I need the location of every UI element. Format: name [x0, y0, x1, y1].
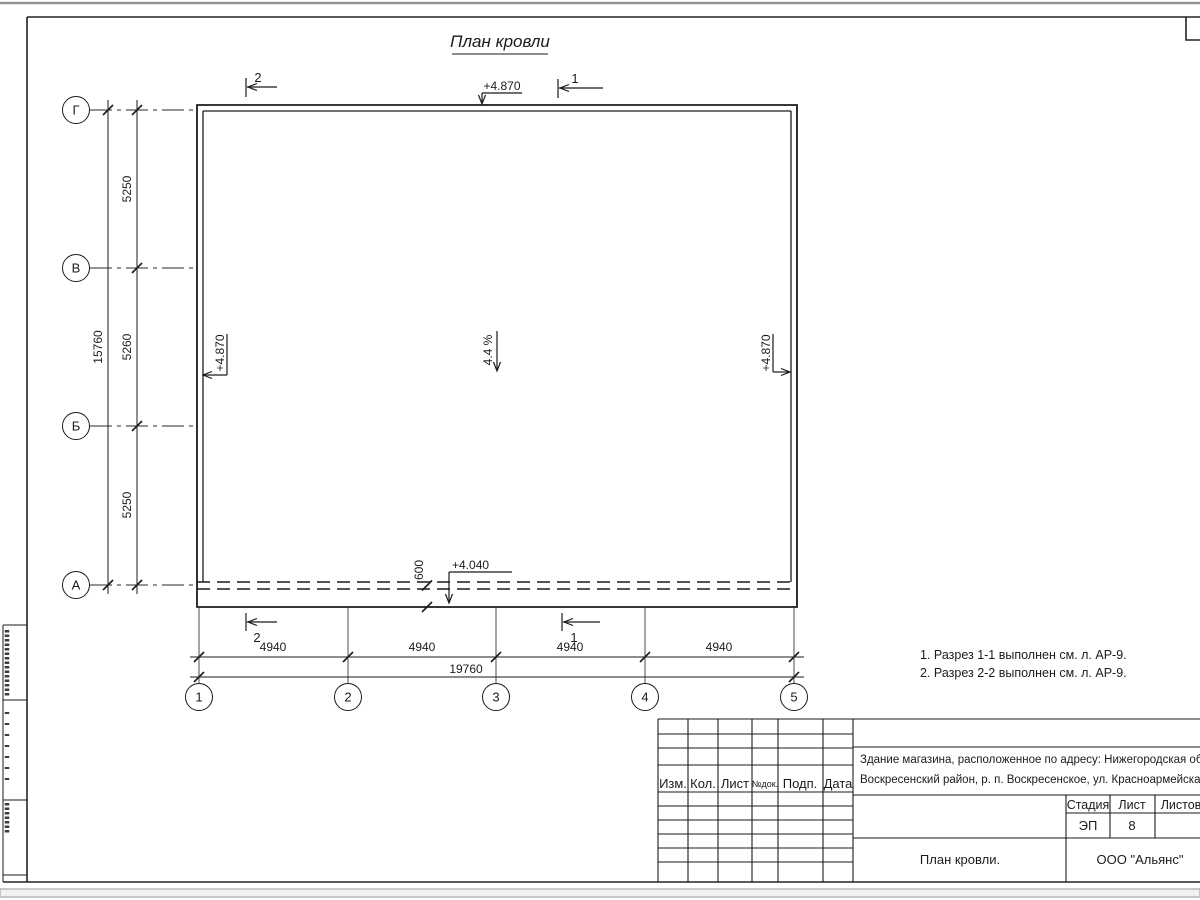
elevation-value: +4.870	[213, 334, 227, 371]
stage-sheet-cells: Стадия Лист Листов ЭП 8	[1067, 798, 1200, 833]
rev-col-header: №док.	[752, 779, 778, 789]
axis-label: А	[72, 578, 81, 593]
slope-value: 4.4 %	[481, 334, 495, 365]
dim-value: 15760	[91, 330, 105, 364]
note-line: 2. Разрез 2-2 выполнен см. л. АР-9.	[920, 666, 1127, 680]
stage-value: ЭП	[1079, 818, 1098, 833]
rev-col-header: Лист	[721, 776, 749, 791]
axis-label: Г	[72, 103, 79, 118]
roof-plan-drawing: План кровли	[0, 0, 1200, 900]
axis-label: Б	[72, 419, 81, 434]
slope-mark: 4.4 %	[481, 331, 501, 371]
elevation-mark-top: +4.870	[479, 79, 523, 104]
elevation-value: +4.040	[452, 558, 489, 572]
dim-value: 5250	[120, 491, 134, 518]
title-block: Изм. Кол. Лист №док. Подп. Дата Здание м…	[658, 719, 1200, 882]
axis-bubbles-left: Г В Б А	[63, 97, 90, 599]
dim-value: 5250	[120, 175, 134, 202]
bottom-dimension-lines	[190, 652, 804, 682]
axis-bubbles-bottom: 1 2 3 4 5	[186, 684, 808, 711]
axis-label: В	[72, 261, 81, 276]
dim-value: 4940	[409, 640, 436, 654]
rev-col-header: Подп.	[783, 776, 818, 791]
project-description: Здание магазина, расположенное по адресу…	[860, 754, 1200, 786]
section-mark-1-top: 1	[558, 71, 603, 98]
sheet-number: 8	[1128, 818, 1135, 833]
axis-label: 3	[492, 690, 499, 705]
drawing-title: План кровли	[450, 32, 550, 51]
horizontal-scrollbar-track[interactable]	[0, 889, 1200, 897]
scrollbar-corner-box[interactable]	[1186, 17, 1200, 40]
axis-label: 5	[790, 690, 797, 705]
rev-col-header: Дата	[824, 776, 854, 791]
elevation-value: +4.870	[759, 334, 773, 371]
dim-value: 4940	[260, 640, 287, 654]
project-line: Воскресенский район, р. п. Воскресенское…	[860, 774, 1200, 786]
sheet-label: Лист	[1118, 798, 1145, 812]
section-label: 2	[254, 70, 261, 85]
elevation-mark-eave: +4.040	[446, 558, 513, 603]
notes: 1. Разрез 1-1 выполнен см. л. АР-9. 2. Р…	[920, 648, 1127, 680]
dim-value: 4940	[706, 640, 733, 654]
rev-col-header: Кол.	[690, 776, 716, 791]
company-name: ООО "Альянс"	[1097, 852, 1184, 867]
section-label: 2	[253, 630, 260, 645]
dim-value: 5260	[120, 333, 134, 360]
axis-lines-horizontal	[90, 110, 197, 585]
rev-col-header: Изм.	[659, 776, 687, 791]
section-label: 1	[570, 630, 577, 645]
sheets-label: Листов	[1161, 798, 1200, 812]
elevation-mark-right: +4.870	[759, 334, 790, 376]
document-title: План кровли.	[920, 852, 1000, 867]
note-line: 1. Разрез 1-1 выполнен см. л. АР-9.	[920, 648, 1127, 662]
dimension-texts: 5250 5260 5250 15760 4940 4940 4940 4940…	[91, 175, 733, 676]
dim-value: 600	[412, 560, 426, 580]
sheet-frame	[3, 17, 1200, 882]
project-line: Здание магазина, расположенное по адресу…	[860, 754, 1200, 766]
section-mark-2-top: 2	[246, 70, 277, 97]
dim-value: 19760	[449, 662, 483, 676]
elevation-mark-left: +4.870	[203, 334, 227, 379]
axis-label: 1	[195, 690, 202, 705]
elevation-value: +4.870	[483, 79, 520, 93]
section-label: 1	[571, 71, 578, 86]
axis-label: 4	[641, 690, 648, 705]
stage-label: Стадия	[1067, 798, 1110, 812]
drawing-viewer: План кровли	[0, 0, 1200, 900]
axis-label: 2	[344, 690, 351, 705]
left-margin-column	[3, 625, 27, 882]
